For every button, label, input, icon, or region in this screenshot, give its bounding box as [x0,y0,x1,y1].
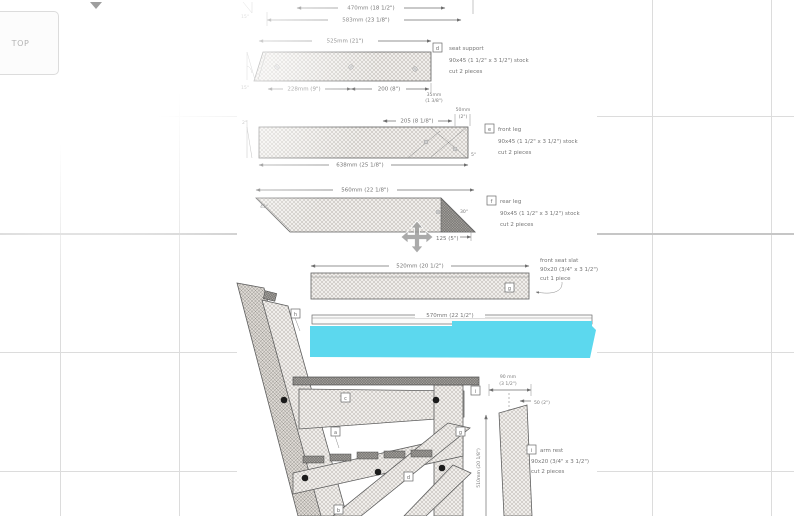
dim-label: (3 1/2") [499,381,517,387]
plan-drawing: 15° 470mm (18 1/2") 583mm (23 1/8") 525m… [0,0,794,516]
dim-label: 470mm (18 1/2") [347,6,394,12]
part-cut: cut 2 pieces [531,469,564,475]
dim-label: 560mm (22 1/8") [341,188,388,194]
angle-label: 15° [241,14,249,20]
part-stock: 90x45 (1 1/2" x 3 1/2") stock [498,139,578,145]
dim-label: 638mm (25 1/8") [336,163,383,169]
part-letter: d [436,46,439,52]
selection-highlight[interactable] [310,321,596,358]
dim-label: (2") [459,114,468,120]
part-cut: cut 2 pieces [498,150,531,156]
part-cut: cut 2 pieces [449,69,482,75]
angle-label: 45° [260,204,268,210]
dim-label: 520mm (20 1/2") [396,264,443,270]
view-cube-top-face[interactable]: TOP [0,11,59,75]
part-stock: 90x20 (3/4" x 3 1/2") [540,267,598,273]
part-name: front leg [498,127,521,133]
dim-label: 510mm (20 1/8") [476,448,482,488]
callout-letter: g [459,430,462,436]
part-name: seat support [449,46,484,52]
angle-label: 2° [242,120,247,126]
part-cut: cut 1 piece [540,276,571,282]
callout-letter: b [337,508,340,514]
part-letter: g [508,286,511,292]
callout-letter: d [407,475,410,481]
part-stock: 90x20 (3/4" x 3 1/2") [531,459,589,465]
part-name: arm rest [540,448,564,454]
callout-letter: a [334,430,337,436]
dim-label: 50 (2") [534,400,550,406]
dim-label: 205 (8 1/8") [400,119,433,125]
dim-label: 125 (5") [436,236,459,242]
dim-label: 583mm (23 1/8") [342,18,389,24]
part-stock: 90x45 (1 1/2" x 3 1/2") stock [500,211,580,217]
dim-label: 525mm (21") [327,39,364,45]
part-letter: f [491,199,493,205]
angle-label: 15° [241,85,249,91]
dim-label: 200 (8") [378,87,401,93]
callout-letter: c [344,396,347,402]
angle-label: 5° [471,152,476,158]
callout-letter: i [475,389,476,395]
selection-highlight-body[interactable] [310,326,596,358]
part-letter: i [531,448,532,454]
view-cube-label: TOP [12,39,30,48]
part-stock: 90x45 (1 1/2" x 3 1/2") stock [449,58,529,64]
dim-label: 50mm [456,107,471,113]
dim-label: 228mm (9") [287,87,320,93]
dim-label: (1 3/8") [425,98,443,104]
part-letter: e [488,127,491,133]
dim-label: 570mm (22 1/2") [426,313,473,319]
app-canvas: 15° 470mm (18 1/2") 583mm (23 1/8") 525m… [0,0,794,516]
angle-label: 30° [460,209,468,215]
part-cut: cut 2 pieces [500,222,533,228]
part-name: front seat slat [540,258,579,264]
part-name: rear leg [500,199,521,205]
part-letter: h [294,312,297,318]
chevron-down-icon[interactable] [90,2,102,9]
dim-label: 35mm [427,92,442,98]
dim-label: 90 mm [500,374,517,380]
